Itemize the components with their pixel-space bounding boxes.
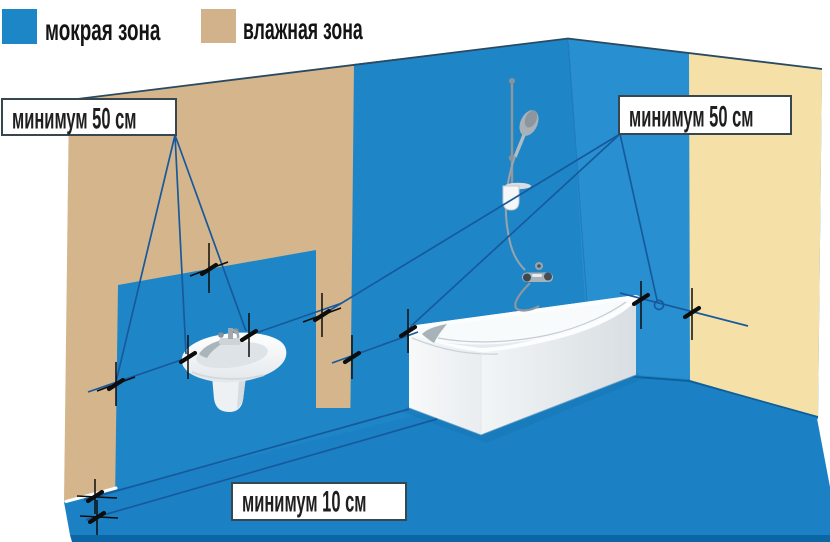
svg-text:влажная зона: влажная зона [243,13,363,46]
svg-text:минимум 50 см: минимум 50 см [12,102,136,135]
svg-text:мокрая зона: мокрая зона [45,14,161,48]
svg-text:минимум 10 см: минимум 10 см [242,485,366,518]
svg-text:минимум 50 см: минимум 50 см [629,100,753,133]
